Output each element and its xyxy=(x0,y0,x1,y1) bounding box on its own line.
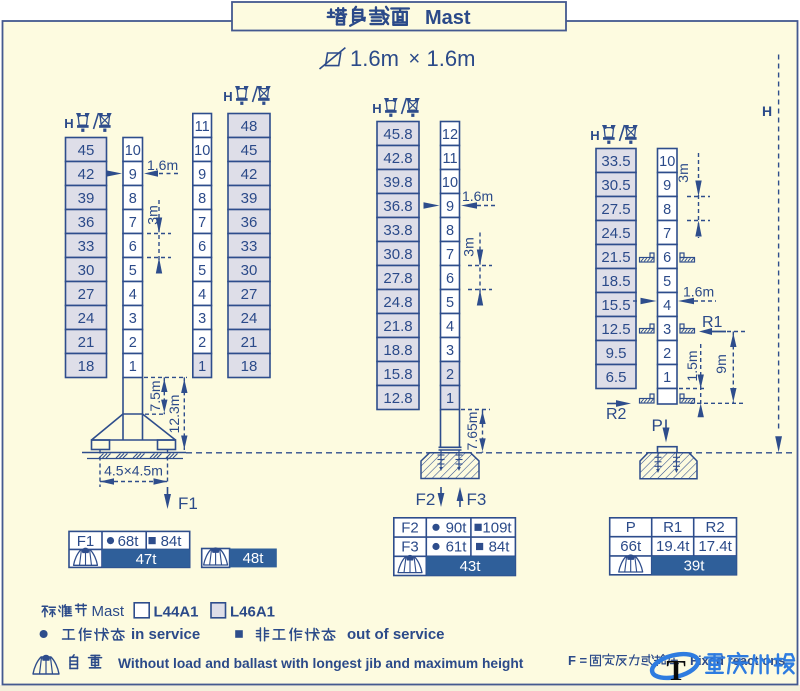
svg-text:24.8: 24.8 xyxy=(383,294,412,311)
svg-text:L44A1: L44A1 xyxy=(154,604,199,621)
svg-text:33.8: 33.8 xyxy=(383,222,412,239)
svg-text:3: 3 xyxy=(446,343,454,359)
svg-text:27: 27 xyxy=(241,286,258,303)
svg-text:H: H xyxy=(590,128,599,143)
svg-text:30.5: 30.5 xyxy=(601,177,630,194)
svg-text:43t: 43t xyxy=(460,558,482,575)
svg-text:7: 7 xyxy=(663,226,671,242)
svg-text:15.8: 15.8 xyxy=(383,366,412,383)
svg-text:8: 8 xyxy=(663,202,671,218)
svg-text:×: × xyxy=(409,48,421,70)
svg-text:5: 5 xyxy=(446,295,454,311)
svg-text:F1: F1 xyxy=(77,533,95,550)
svg-text:out of service: out of service xyxy=(347,626,445,643)
svg-text:6: 6 xyxy=(198,239,206,255)
svg-text:1.6m: 1.6m xyxy=(462,188,493,204)
svg-text:in service: in service xyxy=(131,626,200,643)
svg-text:36: 36 xyxy=(78,214,95,231)
svg-text:1: 1 xyxy=(198,359,206,375)
svg-text:18: 18 xyxy=(78,358,95,375)
svg-text:24: 24 xyxy=(241,310,258,327)
svg-text:P: P xyxy=(626,519,636,536)
svg-text:3: 3 xyxy=(198,311,206,327)
svg-text:6: 6 xyxy=(663,250,671,266)
svg-text:7: 7 xyxy=(129,215,137,231)
svg-text:1: 1 xyxy=(129,359,137,375)
svg-text:4.5×4.5m: 4.5×4.5m xyxy=(104,463,163,479)
svg-text:6: 6 xyxy=(129,239,137,255)
svg-text:1.5m: 1.5m xyxy=(684,350,700,381)
svg-text:12.3m: 12.3m xyxy=(166,395,182,434)
svg-text:5: 5 xyxy=(129,263,137,279)
svg-text:24.5: 24.5 xyxy=(601,225,630,242)
svg-text:18.5: 18.5 xyxy=(601,273,630,290)
svg-text:7: 7 xyxy=(198,215,206,231)
svg-text:7.5m: 7.5m xyxy=(147,380,163,411)
svg-text:4: 4 xyxy=(663,298,671,314)
svg-text:12: 12 xyxy=(442,127,458,143)
svg-text:3m: 3m xyxy=(145,205,161,224)
svg-text:47t: 47t xyxy=(136,551,158,568)
svg-text:42: 42 xyxy=(78,166,95,183)
svg-text:18: 18 xyxy=(241,358,258,375)
svg-text:Without load and ballast with: Without load and ballast with longest ji… xyxy=(118,656,524,671)
svg-text:H: H xyxy=(762,103,772,119)
svg-text:H: H xyxy=(372,101,381,116)
svg-text:3: 3 xyxy=(663,322,671,338)
svg-text:17.4t: 17.4t xyxy=(698,538,732,555)
svg-text:10: 10 xyxy=(442,175,458,191)
svg-text:33: 33 xyxy=(78,238,95,255)
svg-text:2: 2 xyxy=(663,346,671,362)
svg-text:45: 45 xyxy=(241,142,258,159)
svg-text:66t: 66t xyxy=(620,538,642,555)
svg-text:10: 10 xyxy=(125,143,141,159)
svg-text:68t: 68t xyxy=(118,533,140,550)
svg-text:30: 30 xyxy=(78,262,95,279)
svg-text:8: 8 xyxy=(129,191,137,207)
svg-text:5: 5 xyxy=(663,274,671,290)
svg-text:Mast: Mast xyxy=(425,7,471,29)
svg-text:21: 21 xyxy=(241,334,258,351)
svg-text:11: 11 xyxy=(442,151,457,167)
svg-text:42.8: 42.8 xyxy=(383,150,412,167)
svg-text:H: H xyxy=(223,89,232,104)
svg-text:7: 7 xyxy=(446,247,454,263)
svg-text:45: 45 xyxy=(78,142,95,159)
svg-text:7.65m: 7.65m xyxy=(464,412,480,451)
svg-text:9: 9 xyxy=(198,167,206,183)
svg-text:90t: 90t xyxy=(446,519,468,536)
svg-text:11: 11 xyxy=(195,119,210,135)
svg-text:F2: F2 xyxy=(401,519,419,536)
svg-text:H: H xyxy=(64,116,73,131)
svg-text:36.8: 36.8 xyxy=(383,198,412,215)
svg-text:F1: F1 xyxy=(178,494,198,513)
svg-text:1: 1 xyxy=(446,391,454,407)
svg-text:T: T xyxy=(666,655,685,687)
svg-text:3m: 3m xyxy=(461,237,477,256)
svg-text:R1: R1 xyxy=(702,314,723,331)
svg-text:9m: 9m xyxy=(713,354,729,373)
svg-text:30: 30 xyxy=(241,262,258,279)
svg-text:9: 9 xyxy=(446,199,454,215)
svg-text:L46A1: L46A1 xyxy=(230,604,275,621)
svg-text:21.8: 21.8 xyxy=(383,318,412,335)
svg-text:R2: R2 xyxy=(606,406,627,423)
svg-text:6.5: 6.5 xyxy=(606,369,627,386)
svg-text:1.6m: 1.6m xyxy=(147,157,178,173)
svg-text:42: 42 xyxy=(241,166,258,183)
svg-text:4: 4 xyxy=(446,319,454,335)
svg-text:2: 2 xyxy=(129,335,137,351)
svg-text:36: 36 xyxy=(241,214,258,231)
svg-text:4: 4 xyxy=(129,287,137,303)
svg-text:F =: F = xyxy=(568,653,588,668)
svg-text:48t: 48t xyxy=(243,550,265,567)
svg-text:F3: F3 xyxy=(467,490,487,509)
svg-text:18.8: 18.8 xyxy=(383,342,412,359)
svg-text:4: 4 xyxy=(198,287,206,303)
svg-text:27.8: 27.8 xyxy=(383,270,412,287)
svg-text:Mast: Mast xyxy=(92,603,125,620)
svg-text:33: 33 xyxy=(241,238,258,255)
svg-text:R1: R1 xyxy=(663,519,682,536)
svg-text:84t: 84t xyxy=(489,539,511,556)
svg-text:45.8: 45.8 xyxy=(383,126,412,143)
svg-text:3m: 3m xyxy=(675,163,691,182)
svg-text:6: 6 xyxy=(446,271,454,287)
svg-text:21: 21 xyxy=(78,334,95,351)
svg-text:12.8: 12.8 xyxy=(383,390,412,407)
svg-text:109t: 109t xyxy=(482,519,512,536)
svg-text:1: 1 xyxy=(663,370,671,386)
svg-text:21.5: 21.5 xyxy=(601,249,630,266)
svg-text:2: 2 xyxy=(198,335,206,351)
svg-text:27.5: 27.5 xyxy=(601,201,630,218)
svg-text:39: 39 xyxy=(241,190,258,207)
svg-text:2: 2 xyxy=(446,367,454,383)
svg-text:39t: 39t xyxy=(684,558,706,575)
svg-text:5: 5 xyxy=(198,263,206,279)
svg-text:1.6m: 1.6m xyxy=(683,284,714,300)
svg-text:1.6m: 1.6m xyxy=(350,46,399,71)
svg-text:8: 8 xyxy=(446,223,454,239)
svg-text:33.5: 33.5 xyxy=(601,153,630,170)
svg-text:12.5: 12.5 xyxy=(601,321,630,338)
svg-text:24: 24 xyxy=(78,310,95,327)
svg-text:10: 10 xyxy=(194,143,210,159)
svg-text:8: 8 xyxy=(198,191,206,207)
svg-text:15.5: 15.5 xyxy=(601,297,630,314)
svg-text:39.8: 39.8 xyxy=(383,174,412,191)
svg-text:9: 9 xyxy=(129,167,137,183)
svg-text:48: 48 xyxy=(241,118,258,135)
svg-text:3: 3 xyxy=(129,311,137,327)
svg-text:R2: R2 xyxy=(706,519,725,536)
svg-text:39: 39 xyxy=(78,190,95,207)
svg-text:61t: 61t xyxy=(446,539,468,556)
svg-text:19.4t: 19.4t xyxy=(656,538,690,555)
svg-text:1.6m: 1.6m xyxy=(427,46,476,71)
svg-text:P: P xyxy=(652,416,663,435)
svg-text:10: 10 xyxy=(659,154,675,170)
svg-text:9.5: 9.5 xyxy=(606,345,627,362)
svg-text:F2: F2 xyxy=(416,490,436,509)
svg-text:F3: F3 xyxy=(401,539,419,556)
svg-text:27: 27 xyxy=(78,286,95,303)
svg-text:9: 9 xyxy=(663,178,671,194)
svg-text:30.8: 30.8 xyxy=(383,246,412,263)
svg-text:84t: 84t xyxy=(161,533,183,550)
